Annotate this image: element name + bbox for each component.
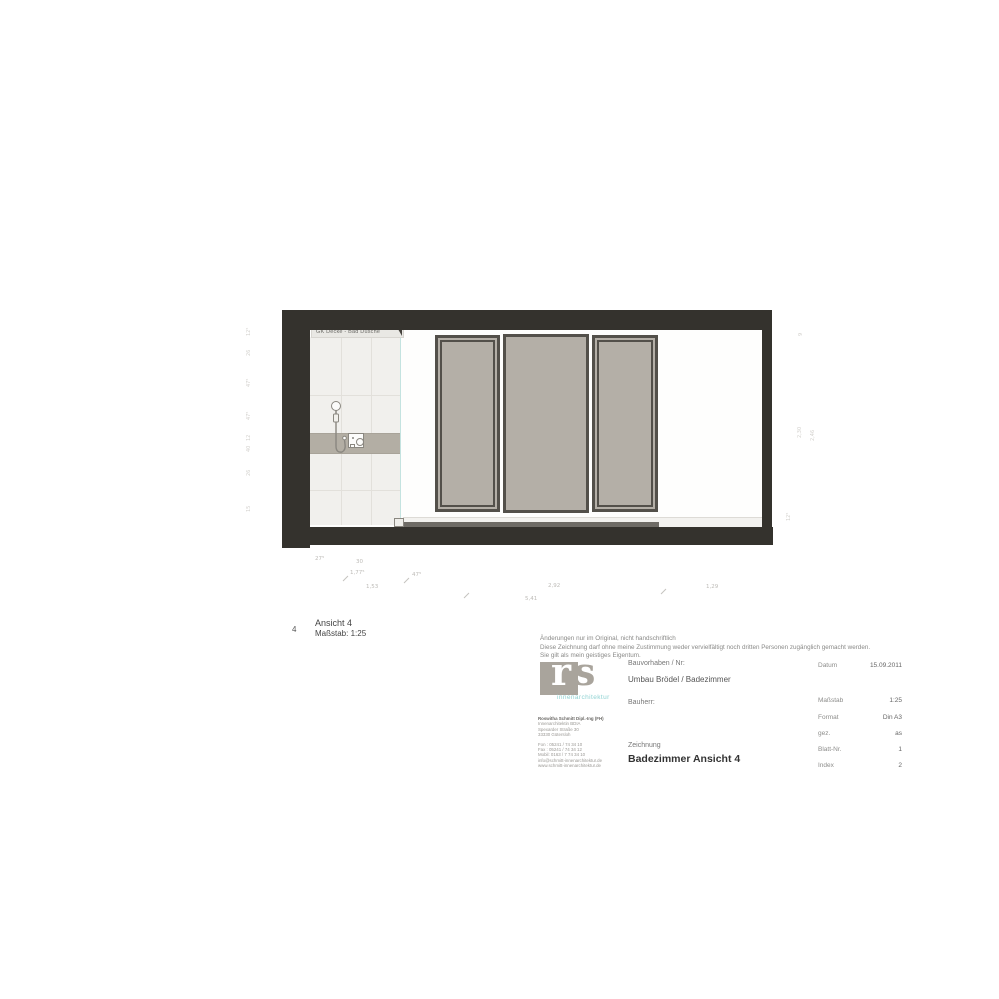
dim-label: 26: [246, 470, 252, 476]
bauherr-label: Bauherr:: [628, 699, 655, 706]
dim-label: 1,29: [706, 584, 718, 590]
dim-label: 2,46: [810, 430, 816, 441]
wall-bottom: [310, 527, 773, 545]
meta-label: Index: [818, 762, 834, 769]
meta-row-massstab: Maßstab 1:25: [818, 697, 902, 704]
dim-label: 47⁵: [246, 379, 252, 387]
zeichnung-value: Badezimmer Ansicht 4: [628, 753, 740, 765]
wall-top: [282, 310, 772, 330]
dim-label: 2,92: [548, 583, 560, 589]
dim-tick: [661, 589, 667, 595]
dim-tick: [464, 593, 470, 599]
window-pane-middle: [503, 334, 589, 513]
glass-partition-line: [400, 337, 401, 525]
view-scale: Maßstab: 1:25: [315, 629, 366, 638]
meta-row-datum: Datum 15.09.2011: [818, 662, 902, 669]
meta-label: Maßstab: [818, 697, 843, 704]
dim-label: 15: [246, 506, 252, 512]
window-pane-left: [435, 335, 500, 512]
meta-label: Blatt-Nr.: [818, 746, 841, 753]
dim-label: 5,41: [525, 596, 537, 602]
logo-letter-r: r: [551, 653, 571, 691]
mixer-dial-icon: [356, 438, 364, 446]
dim-tick: [404, 578, 410, 584]
dim-label: 47⁵: [246, 412, 252, 420]
meta-row-blattnr: Blatt-Nr. 1: [818, 746, 902, 753]
dim-tick: [343, 576, 349, 582]
address-line: www.schmitt-innenarchitektur.de: [538, 763, 604, 768]
copyright-line: Änderungen nur im Original, nicht handsc…: [540, 635, 870, 644]
meta-label: Format: [818, 714, 839, 721]
logo-subtitle: innenarchitektur: [557, 694, 610, 701]
meta-value: 2: [898, 762, 902, 769]
dim-label: 12: [246, 435, 252, 441]
company-logo: r s innenarchitektur: [540, 662, 615, 704]
address-block: Roswitha Schmitt Dipl.-Ing (FH) Innenarc…: [538, 716, 604, 769]
window-pane-right: [592, 335, 658, 512]
bauvorhaben-label: Bauvorhaben / Nr:: [628, 660, 685, 667]
meta-row-index: Index 2: [818, 762, 902, 769]
meta-row-format: Format Din A3: [818, 714, 902, 721]
mixer-dot-icon: [352, 437, 354, 439]
meta-value: Din A3: [883, 714, 902, 721]
meta-value: 1: [898, 746, 902, 753]
niche-box: [394, 518, 404, 527]
meta-label: Datum: [818, 662, 837, 669]
dim-label: 47⁵: [412, 572, 421, 578]
wall-left: [282, 310, 310, 548]
tile-joint: [310, 395, 401, 396]
view-number: 4: [292, 625, 296, 634]
dim-label: 30: [356, 559, 363, 565]
tile-joint: [310, 490, 401, 491]
tile-joint: [371, 337, 372, 525]
meta-label: gez.: [818, 730, 830, 737]
hand-shower-icon: [325, 398, 370, 460]
drawing-sheet: GK Decke - Bad Dusche 27⁵ 30 1,77⁵ 47⁵ 1…: [0, 0, 999, 999]
dim-label: 12⁵: [246, 328, 252, 336]
meta-value: 15.09.2011: [870, 662, 902, 669]
dim-label: 27⁵: [315, 556, 324, 562]
logo-letter-s: s: [574, 653, 595, 691]
wall-right: [762, 328, 772, 527]
meta-row-gez: gez. as: [818, 730, 902, 737]
zeichnung-label: Zeichnung: [628, 742, 661, 749]
dim-label: 9: [798, 333, 804, 336]
bauvorhaben-value: Umbau Brödel / Badezimmer: [628, 675, 731, 684]
shower-mixer-panel: [348, 433, 364, 448]
meta-value: as: [895, 730, 902, 737]
window-sash: [440, 340, 495, 507]
dim-label: 26: [246, 350, 252, 356]
window-sash: [597, 340, 653, 507]
dim-label: 40: [246, 446, 252, 452]
meta-value: 1:25: [889, 697, 902, 704]
dim-label: 2,30: [797, 427, 803, 438]
dim-label: 1,77⁵: [350, 570, 364, 576]
view-title: Ansicht 4: [315, 618, 352, 628]
dim-label: 1,53: [366, 584, 378, 590]
dim-label: 12⁵: [786, 513, 792, 521]
mixer-spout-icon: [350, 444, 355, 448]
